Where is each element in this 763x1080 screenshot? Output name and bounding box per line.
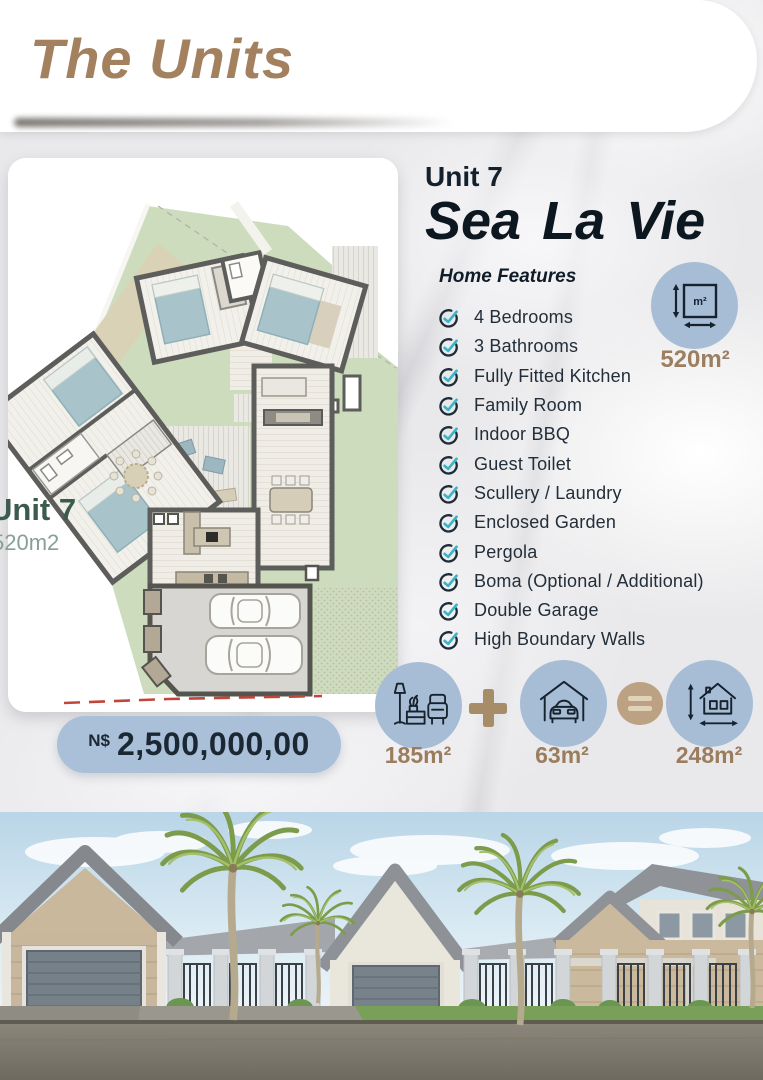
check-icon [438,541,461,564]
floor-plan-svg [8,158,398,712]
feature-item: Family Room [425,391,760,420]
page-title: The Units [30,26,294,91]
feature-label: Double Garage [474,600,599,621]
total-area-badge [666,660,753,747]
feature-item: Enclosed Garden [425,508,760,537]
house-dimensions-icon [681,677,739,731]
check-icon [438,482,461,505]
feature-label: Boma (Optional / Additional) [474,571,704,592]
flyer-page: { "header": { "title": "The Units" }, "u… [0,0,763,1080]
total-area-value: 248m² [656,742,762,769]
plan-area-label: 520m2 [0,530,59,556]
check-icon [438,335,461,358]
plan-unit-label: Unit 7 [0,492,76,528]
check-icon [438,570,461,593]
banner-shadow [14,118,462,127]
feature-label: 4 Bedrooms [474,307,573,328]
check-icon [438,599,461,622]
feature-label: High Boundary Walls [474,629,645,650]
stand-size-value: 520m² [643,346,747,374]
house-area-value: 185m² [366,742,470,769]
feature-label: Enclosed Garden [474,512,616,533]
photo-svg [0,812,763,1080]
development-photo [0,812,763,1080]
stand-size-badge: m² [651,262,738,349]
plus-icon [466,686,510,730]
unit-details-panel: Unit 7 Sea La Vie Home Features 4 Bedroo… [425,162,760,655]
feature-item: Boma (Optional / Additional) [425,567,760,596]
feature-item: Pergola [425,537,760,566]
feature-label: 3 Bathrooms [474,336,578,357]
feature-label: Pergola [474,542,537,563]
feature-label: Scullery / Laundry [474,483,622,504]
feature-label: Guest Toilet [474,454,571,475]
feature-label: Family Room [474,395,582,416]
garage-icon [535,677,593,731]
house-area-badge [375,662,462,749]
feature-label: Indoor BBQ [474,424,570,445]
svg-text:m²: m² [693,296,707,308]
price-badge: N$ 2,500,000,00 [57,716,341,773]
check-icon [438,423,461,446]
feature-item: Guest Toilet [425,449,760,478]
check-icon [438,306,461,329]
feature-item: Indoor BBQ [425,420,760,449]
feature-item: Double Garage [425,596,760,625]
floor-plan [8,158,398,712]
feature-label: Fully Fitted Kitchen [474,366,631,387]
furniture-icon [389,679,449,733]
equals-icon [617,682,663,725]
check-icon [438,365,461,388]
floor-plan-card: Unit 7 520m2 [8,158,398,712]
price-currency: N$ [88,731,110,751]
square-meters-icon: m² [667,278,723,334]
garage-area-badge [520,660,607,747]
check-icon [438,394,461,417]
feature-item: High Boundary Walls [425,625,760,654]
check-icon [438,628,461,651]
header-banner: The Units [0,0,757,132]
check-icon [438,511,461,534]
feature-item: Scullery / Laundry [425,479,760,508]
garage-area-value: 63m² [512,742,612,769]
price-amount: 2,500,000,00 [117,726,310,763]
check-icon [438,453,461,476]
unit-number: Unit 7 [425,162,760,192]
unit-name: Sea La Vie [425,192,760,250]
